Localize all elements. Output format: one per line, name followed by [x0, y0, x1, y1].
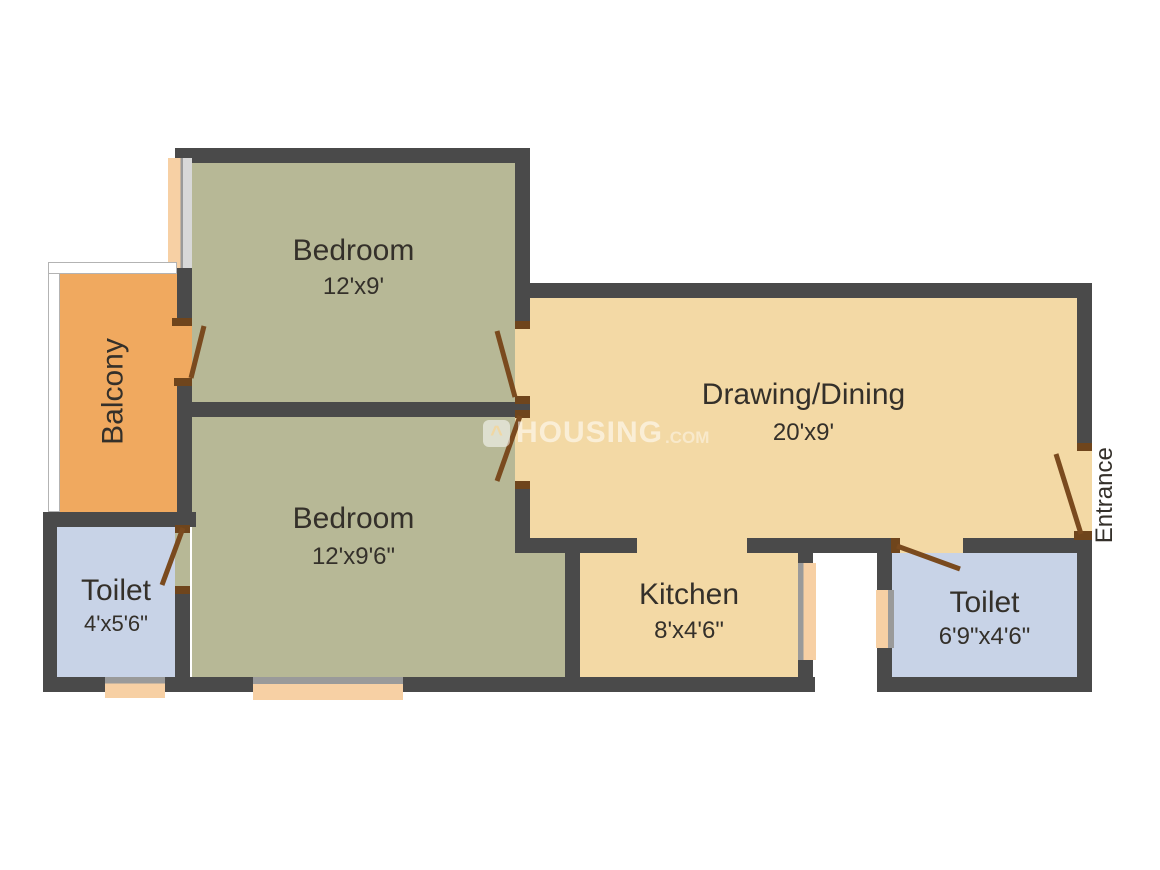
- kitchen-floor: [580, 553, 798, 677]
- bedroom1-dims: 12'x9': [192, 274, 515, 300]
- drawing-dining-label: Drawing/Dining: [530, 378, 1077, 411]
- balcony-label: Balcony: [97, 292, 130, 492]
- watermark-brand-text: HOUSING: [516, 416, 663, 450]
- wall-balcony-bottom: [43, 512, 196, 527]
- toilet2-dims: 6'9"x4'6": [892, 624, 1077, 650]
- wall-bedroom2-right-lower: [515, 481, 530, 540]
- window-bedroom1-left: [168, 158, 192, 268]
- balcony-railing-top: [48, 262, 177, 274]
- kitchen-label: Kitchen: [580, 578, 798, 611]
- doorway-toilet1: [175, 533, 190, 586]
- kitchen-dims: 8'x4'6": [580, 618, 798, 644]
- bedroom2-dims: 12'x9'6": [192, 544, 515, 570]
- housing-logo-icon: ^: [483, 420, 510, 447]
- doorway-bedroom1: [515, 329, 530, 396]
- entrance-label: Entrance: [1092, 435, 1118, 555]
- housing-watermark: ^ HOUSING .COM: [483, 416, 713, 450]
- jamb-bedroom2-door-bottom: [515, 481, 530, 489]
- jamb-entrance-top: [1077, 443, 1092, 451]
- jamb-balcony-door-top: [172, 318, 192, 326]
- jamb-toilet1-door-bottom: [175, 586, 190, 594]
- wall-bottom-right: [877, 677, 1092, 692]
- wall-bedroom2-left: [177, 379, 192, 512]
- jamb-toilet1-door-top: [175, 525, 190, 533]
- bedroom2-label: Bedroom: [192, 502, 515, 535]
- floor-plan: Bedroom 12'x9' Drawing/Dining 20'x9' Bed…: [0, 0, 1160, 870]
- doorway-toilet2: [895, 538, 963, 553]
- jamb-bedroom1-door-bottom: [515, 396, 530, 404]
- wall-toilet1-right: [175, 588, 190, 677]
- wall-kitchen-top-left: [515, 538, 637, 553]
- wall-toilet2-top: [963, 538, 1092, 553]
- wall-drawing-top: [528, 283, 1092, 298]
- wall-bedroom1-right-upper: [515, 148, 530, 323]
- bedroom1-label: Bedroom: [192, 234, 515, 267]
- doorway-kitchen: [637, 538, 747, 553]
- wall-bedroom1-top: [175, 148, 530, 163]
- wall-kitchen-left: [565, 553, 580, 677]
- wall-kitchen-top-right: [747, 538, 895, 553]
- doorway-balcony: [177, 326, 192, 378]
- toilet1-label: Toilet: [57, 574, 175, 607]
- doorway-entrance: [1077, 450, 1092, 537]
- toilet1-dims: 4'x5'6": [57, 612, 175, 636]
- jamb-toilet2-door-left: [891, 538, 900, 553]
- toilet2-label: Toilet: [892, 586, 1077, 619]
- window-bedroom2-bottom: [253, 677, 403, 700]
- window-kitchen-right: [798, 563, 816, 660]
- balcony-railing-left: [48, 262, 60, 512]
- wall-bedrooms-divider: [177, 402, 530, 417]
- watermark-tld-text: .COM: [665, 428, 709, 448]
- window-toilet1-bottom: [105, 677, 165, 698]
- wall-right-lower: [1077, 537, 1092, 692]
- jamb-balcony-door-bottom: [174, 378, 192, 386]
- wall-right-upper: [1077, 283, 1092, 450]
- wall-toilet1-left: [43, 512, 57, 692]
- jamb-bedroom1-door-top: [515, 321, 530, 329]
- jamb-entrance-bottom: [1074, 531, 1092, 540]
